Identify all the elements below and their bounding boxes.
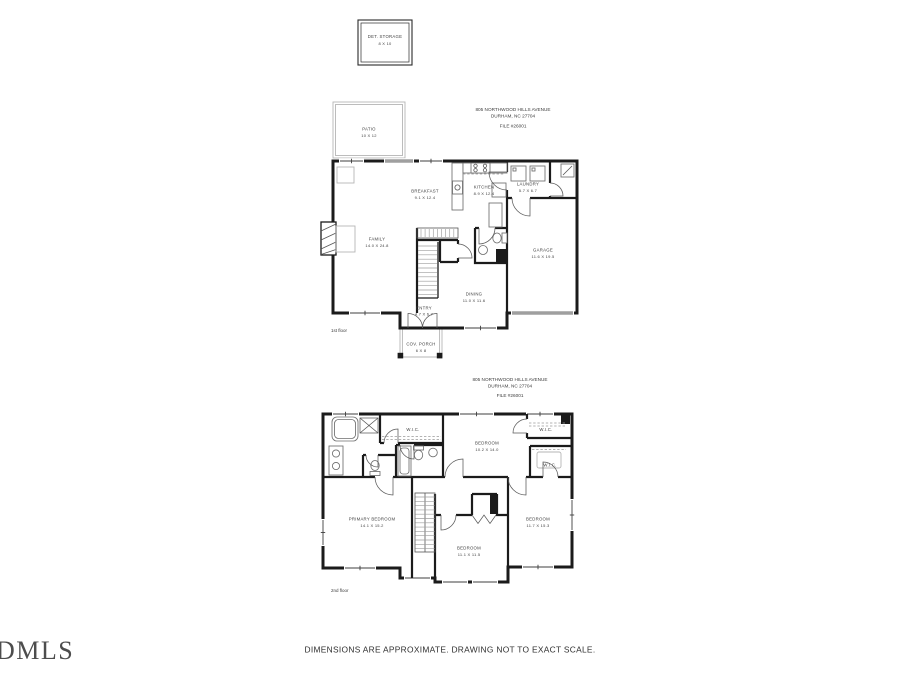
room-dims-patio: 10 X 12: [361, 133, 377, 138]
address2-street: 805 NORTHWOOD HILLS AVENUE: [472, 377, 547, 382]
floorplan-2nd-floor: W.I.C. W.I.C. W.I.C. BEDROOM 10.2 X 14.0…: [320, 411, 575, 593]
room-label-wic2: W.I.C.: [539, 427, 552, 432]
room-label-patio: PATIO: [362, 127, 376, 132]
room-dims-kitchen: 8.9 X 12.4: [474, 191, 495, 196]
det-storage-label: DET. STORAGE: [368, 34, 402, 39]
room-label-wic3: W.I.C.: [543, 463, 556, 468]
address2-file: FILE #26001: [497, 393, 524, 398]
room-label-garage: GARAGE: [533, 248, 553, 253]
closet-bifold-door: [472, 515, 496, 524]
bedroom-closet-shelving: [490, 495, 497, 514]
room-dims-bedroom4: 11.1 X 11.5: [458, 552, 481, 557]
floorplan-sheet: DET. STORAGE 8 X 10 805 NORTHWOOD HILLS …: [0, 0, 900, 675]
powder-room: [479, 233, 508, 263]
room-dims-primary: 14.1 X 15.2: [360, 523, 384, 528]
floor2-exterior-walls: [323, 414, 572, 582]
room-label-dining: DINING: [466, 292, 483, 297]
room-label-bedroom2: BEDROOM: [475, 441, 499, 446]
floor2-interior-walls: [323, 414, 572, 578]
room-label-bedroom4: BEDROOM: [457, 546, 481, 551]
address-block-2nd: 805 NORTHWOOD HILLS AVENUE DURHAM, NC 27…: [472, 377, 547, 398]
washer-dryer: [511, 166, 545, 181]
floorplan-1st-floor: PATIO 10 X 12 BREAKFAST 9.1 X 12.4 KITCH…: [321, 102, 577, 358]
room-dims-laundry: 5.7 X 6.7: [519, 188, 538, 193]
floor1-tag: 1st floor: [331, 328, 348, 333]
room-label-porch: COV. PORCH: [406, 342, 435, 347]
footer-disclaimer: DIMENSIONS ARE APPROXIMATE. DRAWING NOT …: [305, 645, 596, 655]
room-dims-family: 14.0 X 24.8: [365, 243, 389, 248]
utility-sink: [561, 164, 574, 177]
built-in-cabinet: [337, 167, 354, 183]
address1-file: FILE #26001: [500, 124, 527, 129]
primary-bath-fixtures: [329, 417, 380, 476]
room-dims-bedroom2: 10.2 X 14.0: [475, 447, 499, 452]
floor2-tag: 2nd floor: [331, 588, 349, 593]
address-block-1st: 805 NORTHWOOD HILLS AVENUE DURHAM, NC 27…: [475, 107, 550, 129]
room-dims-breakfast: 9.1 X 12.4: [415, 195, 436, 200]
room-dims-bedroom3: 11.7 X 15.3: [527, 523, 550, 528]
detached-storage: DET. STORAGE 8 X 10: [358, 20, 412, 65]
room-dims-dining: 11.0 X 11.6: [463, 298, 486, 303]
address2-city: DURHAM, NC 27704: [488, 384, 533, 389]
room-dims-porch: 6 X 8: [416, 348, 427, 353]
room-label-bedroom3: BEDROOM: [526, 517, 550, 522]
room-label-entry: ENTRY: [416, 306, 432, 311]
stove: [471, 163, 490, 173]
room-label-primary: PRIMARY BEDROOM: [349, 517, 396, 522]
room-dims-garage: 11.6 X 19.5: [532, 254, 555, 259]
room-label-breakfast: BREAKFAST: [411, 189, 439, 194]
address1-city: DURHAM, NC 27704: [491, 114, 536, 119]
address1-street: 805 NORTHWOOD HILLS AVENUE: [475, 107, 550, 112]
det-storage-dims: 8 X 10: [378, 41, 392, 46]
room-label-wic1: W.I.C.: [406, 427, 419, 432]
fireplace: [321, 222, 355, 255]
mls-logo: DMLS: [0, 636, 74, 665]
room-label-family: FAMILY: [369, 237, 385, 242]
hall-bath-fixtures: [398, 446, 437, 476]
staircase-2nd: [415, 493, 435, 552]
floorplan-canvas: DET. STORAGE 8 X 10 805 NORTHWOOD HILLS …: [0, 0, 900, 675]
room-label-kitchen: KITCHEN: [474, 185, 495, 190]
room-label-laundry: LAUNDRY: [517, 182, 539, 187]
room-dims-entry: 4.7 X 6.7: [415, 312, 434, 317]
